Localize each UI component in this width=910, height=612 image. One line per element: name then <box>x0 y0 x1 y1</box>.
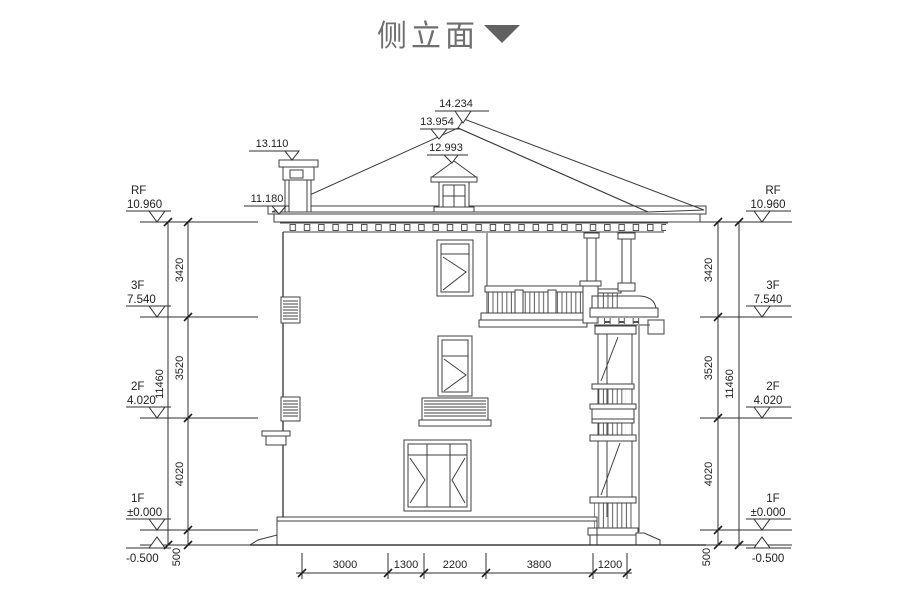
building <box>250 119 706 545</box>
hip-roof <box>272 119 704 212</box>
vdim-2f-1f: 4020 <box>174 462 186 486</box>
elev-ridge-hip: 13.954 <box>420 116 454 128</box>
plinth <box>277 517 597 545</box>
louver-vent-lower <box>281 397 300 421</box>
level-label: 1F <box>131 493 144 505</box>
window-3f <box>437 240 473 296</box>
dormer-window <box>431 161 477 212</box>
window-1f <box>404 440 471 511</box>
louver-vent-upper <box>281 297 300 323</box>
vdim-3f-2f: 3520 <box>703 356 715 380</box>
ac-louver-2f <box>419 398 491 426</box>
elevation-drawing: 侧立面 <box>0 0 910 612</box>
elev-dormer: 12.993 <box>429 142 463 154</box>
title-triangle-icon <box>484 25 520 43</box>
level-elev: ±0.000 <box>750 507 785 519</box>
level-rf-left: RF 10.960 <box>126 185 171 222</box>
eave-cornice <box>268 206 706 232</box>
window-2f <box>438 336 472 396</box>
hdim-0: 3000 <box>333 559 357 571</box>
hdim-3: 3800 <box>527 559 551 571</box>
level-label: 2F <box>131 381 144 393</box>
vdim-total: 11460 <box>154 369 166 399</box>
porch-column-left <box>587 238 596 281</box>
level-elev: 10.960 <box>750 199 785 211</box>
vdim-rf-3f: 3420 <box>174 258 186 282</box>
level-label: 1F <box>766 493 779 505</box>
elevation-sheet: 侧立面 <box>0 0 910 612</box>
level-ground-right: -0.500 <box>746 537 791 565</box>
marker-chimney-top: 13.110 <box>249 138 299 160</box>
level-rf-right: RF 10.960 <box>746 185 791 222</box>
drain-bracket <box>262 431 290 445</box>
balcony-stack-right <box>588 326 660 545</box>
chimney <box>279 160 318 212</box>
dim-chain-left: RF 10.960 3F 7.540 2F 4.020 1F ±0.000 -0… <box>126 185 258 566</box>
dentil-row <box>284 224 666 231</box>
level-elev: 4.020 <box>754 395 783 407</box>
level-1f-left: 1F ±0.000 <box>126 493 171 530</box>
elev-ridge-top: 14.234 <box>439 98 473 110</box>
marker-ridge-hip: 13.954 <box>420 116 461 139</box>
level-label: 3F <box>131 280 144 292</box>
level-elev: ±0.000 <box>127 507 162 519</box>
marker-eave: 11.180 <box>244 193 289 214</box>
dim-chain-right: RF 10.960 3F 7.540 2F 4.020 1F ±0.000 -0… <box>700 185 792 566</box>
hdim-1: 1300 <box>394 559 418 571</box>
level-label: RF <box>765 185 780 197</box>
vdim-1f-gnd: 500 <box>171 548 183 566</box>
level-label: 2F <box>766 381 779 393</box>
level-elev: 7.540 <box>754 294 783 306</box>
hdim-4: 1200 <box>598 559 622 571</box>
vdim-1f-gnd: 500 <box>701 548 713 566</box>
marker-dormer-ridge: 12.993 <box>427 142 468 163</box>
level-3f-left: 3F 7.540 <box>126 280 171 317</box>
level-label: 3F <box>766 280 779 292</box>
vdim-2f-1f: 4020 <box>703 462 715 486</box>
vdim-3f-2f: 3520 <box>174 356 186 380</box>
entry-step <box>636 533 660 545</box>
level-label: RF <box>131 185 146 197</box>
level-elev: 10.960 <box>127 199 162 211</box>
level-elev: -0.500 <box>126 553 159 565</box>
vdim-rf-3f: 3420 <box>703 258 715 282</box>
page-title: 侧立面 <box>377 20 479 53</box>
porch-column-right <box>622 239 631 283</box>
hdim-2: 2200 <box>443 559 467 571</box>
elev-eave: 11.180 <box>251 193 284 205</box>
level-elev: 7.540 <box>127 294 156 306</box>
level-elev: 4.020 <box>127 395 156 407</box>
level-ground-left: -0.500 <box>126 537 171 565</box>
level-elev: -0.500 <box>752 553 785 565</box>
vdim-total: 11460 <box>724 369 736 399</box>
level-3f-right: 3F 7.540 <box>746 280 791 317</box>
title-block: 侧立面 <box>377 20 520 53</box>
dim-chain-bottom: 3000 1300 2200 3800 1200 <box>296 553 632 579</box>
level-1f-right: 1F ±0.000 <box>746 493 791 530</box>
elev-chimney: 13.110 <box>256 138 289 150</box>
level-2f-right: 2F 4.020 <box>746 381 791 418</box>
